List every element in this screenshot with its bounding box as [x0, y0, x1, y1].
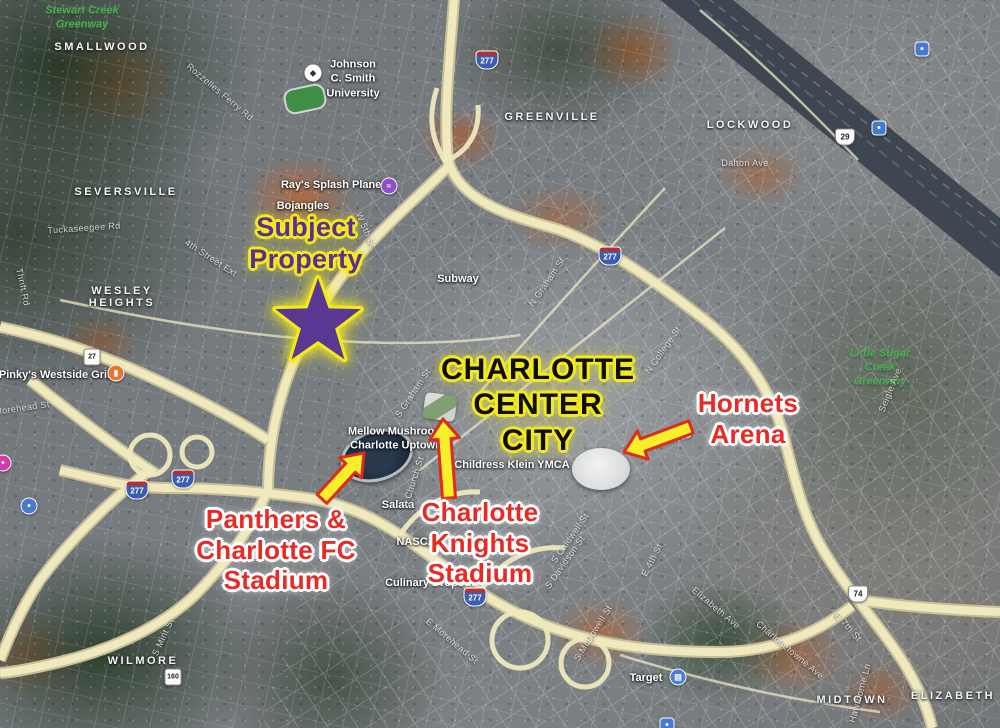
street-label-e-7th-st: E 7th St [833, 611, 864, 644]
center-city-label: CHARLOTTE CENTER CITY [407, 352, 669, 458]
route-160-shield-icon: 160 [165, 669, 182, 686]
street-label-tuckaseegee-rd: Tuckaseegee Rd [47, 220, 121, 235]
subject-property-label: Subject Property [195, 212, 417, 276]
street-label-hawthorne-ln: Hawthorne Ln [847, 662, 872, 723]
neighborhood-label-greenville: GREENVILLE [504, 111, 599, 123]
interstate-277-shield-icon: 277 [464, 588, 487, 607]
poi-label-bojangles[interactable]: Bojangles [277, 199, 330, 213]
panthers-stadium-label: Panthers & Charlotte FC Stadium [160, 504, 392, 596]
street-label-s-mint-st: S Mint St [150, 617, 176, 658]
street-label-charlottetowne-ave: Charlottetowne Ave [754, 619, 826, 681]
neighborhood-label-seversville: SEVERSVILLE [74, 186, 177, 198]
interstate-277-shield-icon: 277 [599, 247, 622, 266]
transit-bottom-icon[interactable]: ● [660, 718, 675, 728]
greenway-label-stewart-creek-greenway: Stewart Creek Greenway [45, 4, 118, 32]
pink-poi-icon[interactable]: ● [0, 455, 12, 472]
interstate-277-shield-icon: 277 [172, 470, 195, 489]
poi-label-target[interactable]: Target [630, 671, 663, 685]
poi-label-childress-klein-ymca[interactable]: Childress Klein YMCA [454, 458, 569, 472]
street-label-elizabeth-ave: Elizabeth Ave [690, 585, 742, 631]
street-label-dalton-ave: Dalton Ave [721, 158, 768, 168]
street-label-s-mcdowell-st: S McDowell St [572, 603, 614, 662]
neighborhood-label-lockwood: LOCKWOOD [707, 119, 794, 131]
railyard-band [655, 0, 1000, 272]
street-label-e-4th-st: E 4th St [639, 542, 664, 578]
poi-label-pinky-s-westside-grill[interactable]: Pinky's Westside Grill [0, 368, 113, 382]
interstate-277-shield-icon: 277 [476, 51, 499, 70]
lodging-icon[interactable]: ● [21, 498, 38, 515]
neighborhood-label-smallwood: SMALLWOOD [54, 41, 149, 53]
graduation-cap-icon[interactable]: ◆ [305, 65, 322, 82]
neighborhood-label-wesley-heights: WESLEY HEIGHTS [89, 285, 155, 309]
street-label-rozzelles-ferry-rd: Rozzelles Ferry Rd [185, 61, 256, 122]
street-label-n-graham-st: N Graham St [527, 256, 567, 309]
transit-icon[interactable]: ● [872, 121, 887, 136]
interstate-277-shield-icon: 277 [126, 481, 149, 500]
knights-stadium-label: Charlotte Knights Stadium [374, 497, 586, 589]
poi-label-johnson-c-smith-university[interactable]: Johnson C. Smith University [326, 58, 379, 101]
satellite-map[interactable]: SMALLWOODSEVERSVILLEWESLEY HEIGHTSGREENV… [0, 0, 1000, 728]
street-label-e-morehead-st: E Morehead St [424, 616, 480, 666]
route-27-shield-icon: 27 [84, 349, 101, 366]
shopping-icon[interactable]: ▤ [670, 669, 687, 686]
greenway-label-little-sugar-creek-greenway: Little Sugar Creek Greenway [850, 347, 911, 388]
street-label-thrift-rd: Thrift Rd [14, 267, 32, 306]
street-label-morehead-st: Morehead St [0, 399, 50, 417]
poi-label-subway[interactable]: Subway [437, 272, 479, 286]
restaurant-icon[interactable]: ▮ [108, 365, 125, 382]
hornets-arena-label: Hornets Arena [653, 388, 843, 449]
jcsu-football-field [282, 82, 328, 116]
route-29-shield-icon: 29 [835, 129, 855, 146]
neighborhood-label-elizabeth: ELIZABETH [911, 690, 995, 702]
transit-icon[interactable]: ● [915, 42, 930, 57]
route-74-shield-icon: 74 [848, 586, 868, 603]
swim-icon[interactable]: ≈ [381, 178, 398, 195]
poi-label-ray-s-splash-planet[interactable]: Ray's Splash Planet [281, 178, 385, 192]
neighborhood-label-wilmore: WILMORE [108, 655, 179, 667]
